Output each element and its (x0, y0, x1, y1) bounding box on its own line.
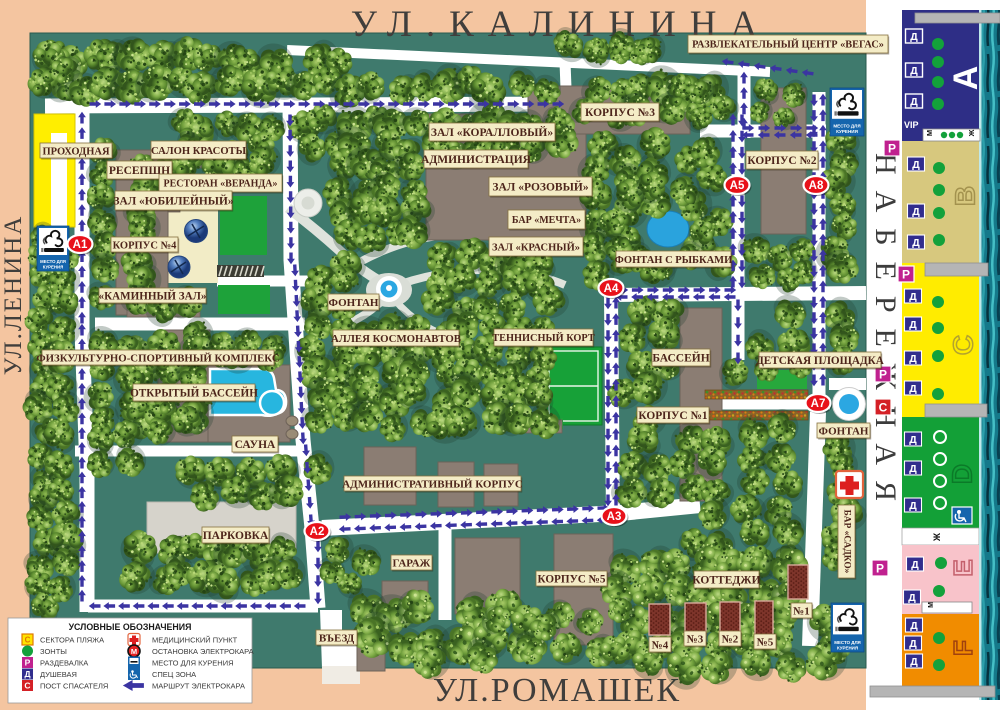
svg-text:Д: Д (910, 620, 918, 632)
svg-text:КУРЕНИЯ: КУРЕНИЯ (43, 264, 64, 269)
svg-text:А4: А4 (604, 283, 619, 295)
svg-text:Ж: Ж (967, 129, 976, 137)
svg-text:М: М (131, 647, 137, 656)
svg-text:ДЕТСКАЯ ПЛОЩАДКА: ДЕТСКАЯ ПЛОЩАДКА (756, 355, 884, 367)
svg-text:Д: Д (24, 669, 30, 679)
svg-text:Д: Д (910, 31, 918, 43)
svg-text:М: М (928, 602, 935, 608)
svg-text:Р: Р (902, 268, 910, 282)
svg-text:МАРШРУТ ЭЛЕКТРОКАРА: МАРШРУТ ЭЛЕКТРОКАРА (152, 682, 245, 691)
svg-text:Д: Д (909, 383, 917, 395)
svg-text:№5: №5 (757, 637, 774, 649)
svg-text:ВЪЕЗД: ВЪЕЗД (319, 633, 355, 645)
svg-text:Д: Д (909, 463, 917, 475)
svg-text:КУРЕНИЯ: КУРЕНИЯ (836, 129, 858, 134)
svg-text:Р: Р (876, 562, 884, 576)
svg-text:№2: №2 (722, 634, 739, 646)
svg-text:А1: А1 (73, 239, 88, 251)
svg-text:ЗАЛ «КОРАЛЛОВЫЙ»: ЗАЛ «КОРАЛЛОВЫЙ» (431, 125, 553, 139)
svg-text:ФОНТАН: ФОНТАН (819, 426, 869, 438)
svg-text:АЛЛЕЯ КОСМОНАВТОВ: АЛЛЕЯ КОСМОНАВТОВ (331, 333, 461, 345)
svg-text:ПРОХОДНАЯ: ПРОХОДНАЯ (42, 146, 110, 157)
svg-text:САЛОН КРАСОТЫ: САЛОН КРАСОТЫ (151, 146, 247, 157)
svg-text:БАР «САДКО»: БАР «САДКО» (842, 510, 852, 574)
svg-text:Д: Д (912, 159, 920, 171)
svg-text:А2: А2 (310, 526, 325, 538)
svg-text:ДУШЕВАЯ: ДУШЕВАЯ (40, 670, 77, 679)
svg-text:ФОНТАН: ФОНТАН (329, 297, 379, 309)
svg-text:РАЗДЕВАЛКА: РАЗДЕВАЛКА (40, 659, 88, 668)
svg-text:VIP: VIP (904, 120, 919, 130)
svg-text:МЕСТО ДЛЯ КУРЕНИЯ: МЕСТО ДЛЯ КУРЕНИЯ (152, 659, 234, 668)
svg-text:Д: Д (912, 237, 920, 249)
svg-text:КОРПУС №3: КОРПУС №3 (585, 107, 655, 119)
svg-text:Д: Д (910, 96, 918, 108)
svg-text:Д: Д (909, 638, 917, 650)
svg-text:F: F (948, 640, 978, 656)
svg-text:НАБЕРЕЖНАЯ: НАБЕРЕЖНАЯ (869, 153, 902, 517)
svg-text:С: С (25, 636, 31, 645)
svg-text:Д: Д (909, 291, 917, 303)
svg-text:М: М (925, 130, 934, 136)
svg-text:Д: Д (909, 353, 917, 365)
svg-text:КОРПУС №4: КОРПУС №4 (113, 240, 178, 251)
svg-text:ПАРКОВКА: ПАРКОВКА (203, 530, 269, 542)
svg-text:Д: Д (908, 592, 916, 604)
svg-text:Д: Д (909, 434, 917, 446)
svg-text:Д: Д (910, 656, 918, 668)
svg-text:ФОНТАН С РЫБКАМИ: ФОНТАН С РЫБКАМИ (615, 255, 732, 266)
svg-text:РЕСТОРАН «ВЕРАНДА»: РЕСТОРАН «ВЕРАНДА» (164, 179, 278, 190)
svg-text:МЕСТО ДЛЯ: МЕСТО ДЛЯ (40, 259, 66, 264)
svg-text:КОРПУС №5: КОРПУС №5 (538, 574, 606, 586)
svg-text:А: А (947, 66, 985, 91)
svg-text:ЗОНТЫ: ЗОНТЫ (40, 647, 67, 656)
svg-text:ПОСТ СПАСАТЕЛЯ: ПОСТ СПАСАТЕЛЯ (40, 682, 108, 691)
svg-text:БАР «МЕЧТА»: БАР «МЕЧТА» (512, 215, 581, 226)
svg-text:Ж: Ж (932, 532, 942, 542)
svg-text:Р: Р (879, 368, 887, 382)
svg-text:КОРПУС №2: КОРПУС №2 (747, 155, 817, 167)
svg-text:УЛ.ЛЕНИНА: УЛ.ЛЕНИНА (0, 215, 27, 376)
svg-text:Р: Р (25, 658, 31, 668)
svg-text:СЕКТОРА ПЛЯЖА: СЕКТОРА ПЛЯЖА (40, 636, 104, 645)
svg-text:ЗАЛ «ЮБИЛЕЙНЫЙ»: ЗАЛ «ЮБИЛЕЙНЫЙ» (113, 196, 233, 208)
svg-text:Д: Д (909, 500, 917, 512)
svg-text:АДМИНИСТРАТИВНЫЙ КОРПУС: АДМИНИСТРАТИВНЫЙ КОРПУС (342, 479, 523, 491)
svg-text:ОТКРЫТЫЙ БАССЕЙН: ОТКРЫТЫЙ БАССЕЙН (130, 388, 258, 400)
svg-text:№3: №3 (687, 634, 704, 646)
svg-text:УСЛОВНЫЕ ОБОЗНАЧЕНИЯ: УСЛОВНЫЕ ОБОЗНАЧЕНИЯ (69, 622, 192, 632)
svg-text:КОРПУС №1: КОРПУС №1 (638, 410, 708, 422)
svg-text:А3: А3 (607, 511, 622, 523)
svg-text:РАЗВЛЕКАТЕЛЬНЫЙ ЦЕНТР «ВЕГАС»: РАЗВЛЕКАТЕЛЬНЫЙ ЦЕНТР «ВЕГАС» (692, 39, 884, 51)
svg-text:МЕДИЦИНСКИЙ ПУНКТ: МЕДИЦИНСКИЙ ПУНКТ (152, 636, 238, 645)
svg-text:Д: Д (912, 206, 920, 218)
svg-text:С: С (948, 335, 979, 355)
svg-text:С: С (24, 681, 30, 691)
svg-text:ГАРАЖ: ГАРАЖ (393, 558, 431, 570)
svg-text:ЗАЛ «КРАСНЫЙ»: ЗАЛ «КРАСНЫЙ» (492, 241, 580, 253)
svg-text:МЕСТО ДЛЯ: МЕСТО ДЛЯ (834, 640, 861, 645)
svg-text:№1: №1 (793, 606, 810, 618)
svg-text:Д: Д (910, 65, 918, 77)
svg-text:ФИЗКУЛЬТУРНО-СПОРТИВНЫЙ КОМПЛЕ: ФИЗКУЛЬТУРНО-СПОРТИВНЫЙ КОМПЛЕКС (36, 352, 279, 364)
svg-text:СПЕЦ ЗОНА: СПЕЦ ЗОНА (152, 670, 196, 679)
svg-text:Р: Р (888, 142, 896, 156)
svg-text:А8: А8 (809, 180, 824, 192)
svg-text:БАССЕЙН: БАССЕЙН (652, 351, 709, 365)
svg-text:А5: А5 (730, 180, 745, 192)
svg-text:В: В (950, 186, 981, 206)
svg-text:МЕСТО ДЛЯ: МЕСТО ДЛЯ (833, 124, 860, 129)
svg-text:С: С (879, 401, 888, 415)
svg-text:Д: Д (909, 319, 917, 331)
svg-text:САУНА: САУНА (235, 439, 276, 451)
svg-text:АДМИНИСТРАЦИЯ: АДМИНИСТРАЦИЯ (421, 154, 532, 166)
svg-text:ЗАЛ «РОЗОВЫЙ»: ЗАЛ «РОЗОВЫЙ» (492, 180, 588, 194)
svg-text:Д: Д (911, 559, 919, 571)
svg-text:Е: Е (948, 559, 978, 576)
svg-text:ОСТАНОВКА ЭЛЕКТРОКАРА: ОСТАНОВКА ЭЛЕКТРОКАРА (152, 647, 254, 656)
svg-text:А7: А7 (811, 398, 826, 410)
svg-text:D: D (947, 464, 978, 484)
svg-text:«КАМИННЫЙ ЗАЛ»: «КАМИННЫЙ ЗАЛ» (99, 291, 207, 303)
svg-text:№4: №4 (652, 640, 669, 652)
svg-text:КУРЕНИЯ: КУРЕНИЯ (837, 645, 858, 650)
svg-text:КОТТЕДЖИ: КОТТЕДЖИ (692, 575, 760, 587)
svg-text:ТЕННИСНЫЙ КОРТ: ТЕННИСНЫЙ КОРТ (492, 332, 595, 344)
